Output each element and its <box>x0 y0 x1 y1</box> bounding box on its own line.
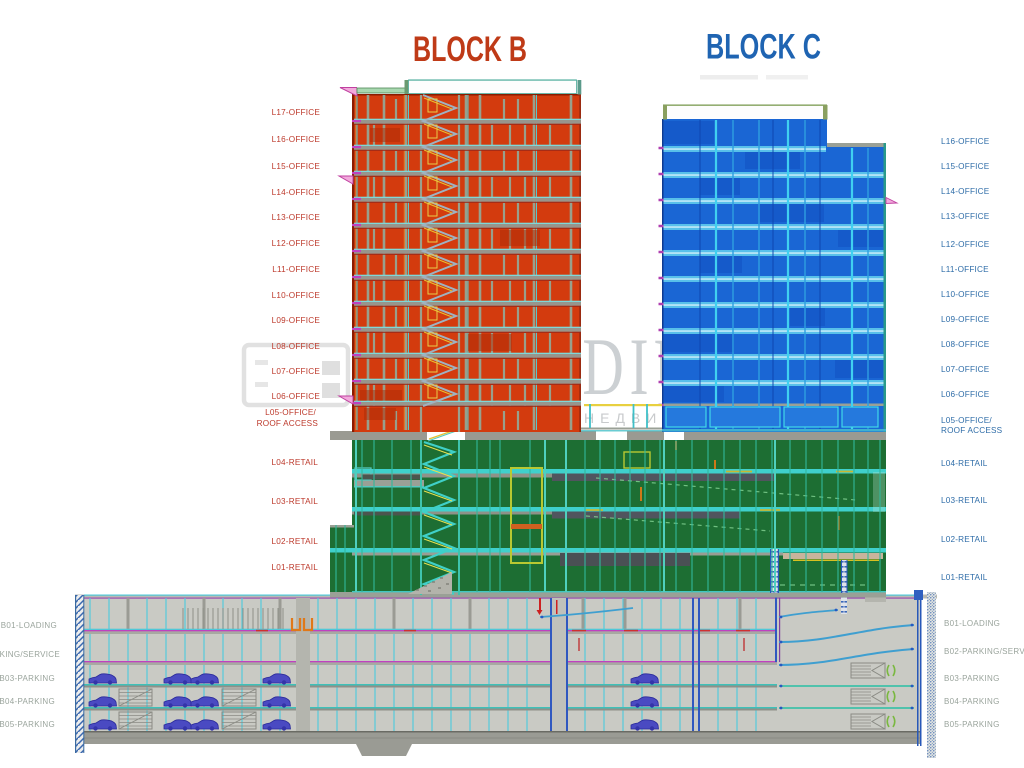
svg-text:L11-OFFICE: L11-OFFICE <box>272 265 320 274</box>
svg-text:B05-PARKING: B05-PARKING <box>0 720 55 729</box>
svg-text:B03-PARKING: B03-PARKING <box>0 674 55 683</box>
svg-text:L07-OFFICE: L07-OFFICE <box>941 365 990 374</box>
svg-text:BLOCK B: BLOCK B <box>413 30 527 69</box>
svg-text:L16-OFFICE: L16-OFFICE <box>941 137 990 146</box>
svg-text:L12-OFFICE: L12-OFFICE <box>272 239 321 248</box>
svg-text:B04-PARKING: B04-PARKING <box>0 697 55 706</box>
svg-text:B03-PARKING: B03-PARKING <box>944 674 1000 683</box>
svg-text:L12-OFFICE: L12-OFFICE <box>941 240 990 249</box>
svg-text:L08-OFFICE: L08-OFFICE <box>272 342 321 351</box>
svg-text:НЕДВИ: НЕДВИ <box>584 410 662 426</box>
svg-text:ROOF ACCESS: ROOF ACCESS <box>257 419 319 428</box>
svg-text:L05-OFFICE/: L05-OFFICE/ <box>941 416 992 425</box>
svg-text:L10-OFFICE: L10-OFFICE <box>941 290 990 299</box>
svg-text:L04-RETAIL: L04-RETAIL <box>941 459 988 468</box>
svg-text:L04-RETAIL: L04-RETAIL <box>272 458 319 467</box>
svg-text:B02-PARKING/SERVICE: B02-PARKING/SERVICE <box>944 647 1024 656</box>
svg-text:L17-OFFICE: L17-OFFICE <box>272 108 321 117</box>
svg-text:L14-OFFICE: L14-OFFICE <box>941 187 990 196</box>
svg-text:L01-RETAIL: L01-RETAIL <box>941 573 988 582</box>
svg-text:B02-PARKING/SERVICE: B02-PARKING/SERVICE <box>0 650 60 659</box>
svg-text:BLOCK C: BLOCK C <box>706 28 821 67</box>
svg-text:B05-PARKING: B05-PARKING <box>944 720 1000 729</box>
svg-text:B01-LOADING: B01-LOADING <box>944 619 1000 628</box>
svg-text:L09-OFFICE: L09-OFFICE <box>272 316 321 325</box>
svg-text:L05-OFFICE/: L05-OFFICE/ <box>265 408 316 417</box>
svg-text:L14-OFFICE: L14-OFFICE <box>272 188 321 197</box>
svg-text:L06-OFFICE: L06-OFFICE <box>941 390 990 399</box>
svg-text:L13-OFFICE: L13-OFFICE <box>941 212 990 221</box>
svg-text:L11-OFFICE: L11-OFFICE <box>941 265 989 274</box>
svg-text:L08-OFFICE: L08-OFFICE <box>941 340 990 349</box>
svg-text:L10-OFFICE: L10-OFFICE <box>272 291 321 300</box>
svg-text:L03-RETAIL: L03-RETAIL <box>272 497 319 506</box>
svg-text:L07-OFFICE: L07-OFFICE <box>272 367 321 376</box>
svg-text:B04-PARKING: B04-PARKING <box>944 697 1000 706</box>
svg-text:L15-OFFICE: L15-OFFICE <box>272 162 321 171</box>
svg-text:B01-LOADING: B01-LOADING <box>1 621 57 630</box>
svg-text:L02-RETAIL: L02-RETAIL <box>941 535 988 544</box>
svg-text:L02-RETAIL: L02-RETAIL <box>272 537 319 546</box>
svg-text:L15-OFFICE: L15-OFFICE <box>941 162 990 171</box>
svg-text:L09-OFFICE: L09-OFFICE <box>941 315 990 324</box>
svg-text:L16-OFFICE: L16-OFFICE <box>272 135 321 144</box>
svg-text:L03-RETAIL: L03-RETAIL <box>941 496 988 505</box>
svg-text:ROOF ACCESS: ROOF ACCESS <box>941 426 1003 435</box>
svg-text:L06-OFFICE: L06-OFFICE <box>272 392 321 401</box>
svg-text:L13-OFFICE: L13-OFFICE <box>272 213 321 222</box>
svg-text:L01-RETAIL: L01-RETAIL <box>272 563 319 572</box>
